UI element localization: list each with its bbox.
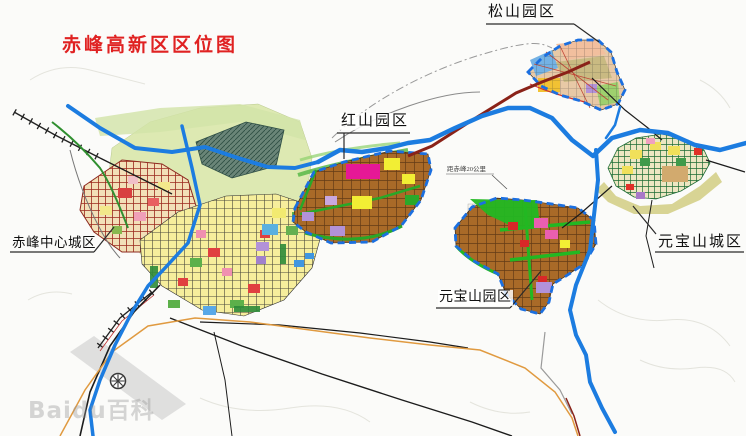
map-title: 赤峰高新区区位图 (62, 30, 238, 57)
label-yuanbaoshan-city: 元宝山城区 (658, 234, 743, 251)
label-hongshan-park: 红山园区 (340, 113, 410, 130)
interchange-icon (111, 374, 126, 389)
watermark-baidu: Baidu百科 (28, 391, 155, 425)
planning-map-art (0, 0, 746, 436)
annotation-distance-note: 距赤峰20公里 (447, 163, 486, 173)
map-canvas: 赤峰高新区区位图 松山园区 红山园区 赤峰中心城区 元宝山园区 元宝山城区 距赤… (0, 0, 746, 436)
label-chifeng-center-city: 赤峰中心城区 (12, 235, 96, 251)
label-songshan-park: 松山园区 (488, 4, 556, 21)
label-yuanbaoshan-park: 元宝山园区 (438, 290, 513, 306)
